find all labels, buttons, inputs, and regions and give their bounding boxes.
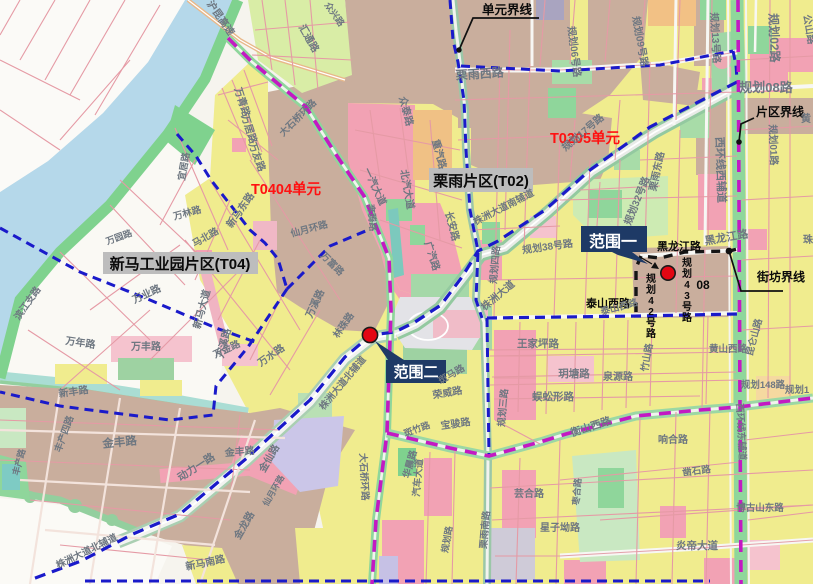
svg-text:栗雨片区(T02): 栗雨片区(T02): [433, 172, 529, 190]
svg-text:王家坪路: 王家坪路: [517, 337, 559, 350]
svg-text:规划02路: 规划02路: [766, 13, 783, 64]
svg-text:街坊界线: 街坊界线: [756, 269, 805, 284]
svg-text:黄山西路: 黄山西路: [709, 343, 748, 355]
svg-text:规: 规: [646, 272, 656, 285]
svg-text:规划08路: 规划08路: [739, 80, 793, 95]
svg-text:蜈蚣形路: 蜈蚣形路: [532, 390, 574, 403]
svg-text:划: 划: [646, 283, 656, 296]
svg-text:路: 路: [682, 311, 693, 324]
svg-text:黑龙江路: 黑龙江路: [657, 239, 702, 253]
svg-text:大石桥环路: 大石桥环路: [357, 453, 371, 502]
svg-text:路: 路: [646, 327, 657, 340]
svg-text:玥塘路: 玥塘路: [558, 367, 590, 380]
svg-text:规划148路: 规划148路: [741, 379, 786, 391]
svg-text:新马工业园片区(T04): 新马工业园片区(T04): [110, 255, 251, 273]
svg-text:万丰路: 万丰路: [130, 340, 162, 353]
svg-text:2: 2: [648, 307, 654, 318]
svg-text:4: 4: [648, 296, 654, 307]
svg-text:划: 划: [682, 267, 692, 280]
svg-text:黄: 黄: [801, 112, 811, 125]
svg-text:珠: 珠: [803, 233, 813, 246]
svg-text:规划1: 规划1: [785, 384, 810, 396]
svg-text:泉源路: 泉源路: [602, 370, 634, 383]
svg-text:规: 规: [682, 256, 692, 269]
svg-text:范围二: 范围二: [393, 363, 438, 381]
svg-text:炎帝大道: 炎帝大道: [676, 539, 718, 552]
svg-text:单元界线: 单元界线: [482, 2, 533, 17]
svg-text:星子坳路: 星子坳路: [540, 521, 581, 534]
svg-text:号: 号: [682, 301, 692, 313]
svg-text:范围一: 范围一: [589, 232, 637, 251]
svg-text:4: 4: [684, 280, 690, 291]
svg-text:片区界线: 片区界线: [756, 104, 804, 119]
svg-text:T0404单元: T0404单元: [251, 180, 322, 198]
svg-text:响合路: 响合路: [658, 433, 689, 446]
svg-text:3: 3: [684, 291, 690, 302]
svg-text:08: 08: [696, 278, 710, 292]
svg-text:博古山东路: 博古山东路: [736, 502, 784, 514]
svg-text:号: 号: [646, 317, 656, 329]
svg-text:芸合路: 芸合路: [514, 487, 545, 500]
